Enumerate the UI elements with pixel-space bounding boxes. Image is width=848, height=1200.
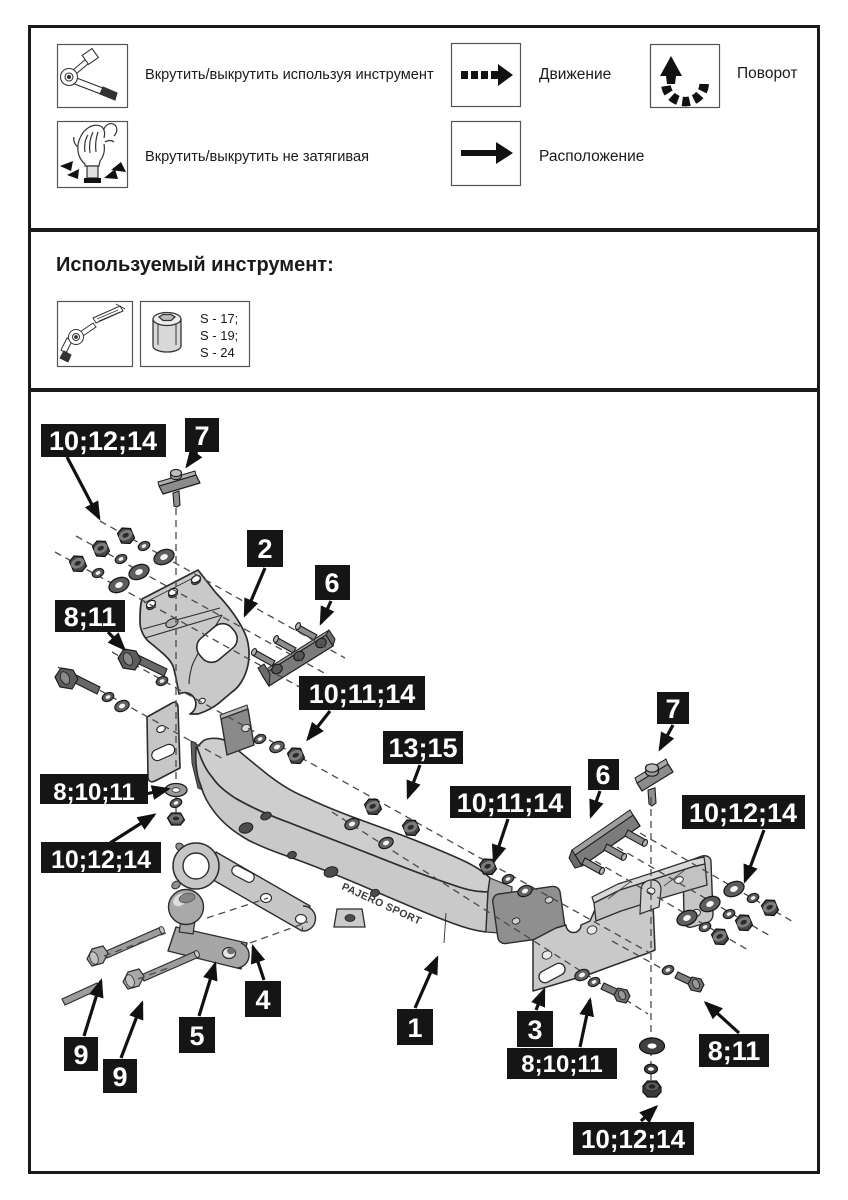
svg-text:8;10;11: 8;10;11 [521, 1051, 602, 1078]
svg-text:2: 2 [257, 534, 272, 564]
svg-text:9: 9 [112, 1062, 127, 1092]
svg-text:13;15: 13;15 [388, 733, 457, 763]
svg-text:8;10;11: 8;10;11 [53, 779, 134, 806]
svg-text:8;11: 8;11 [64, 602, 117, 632]
svg-text:Вкрутить/выкрутить не затягива: Вкрутить/выкрутить не затягивая [145, 149, 369, 165]
svg-text:Движение: Движение [539, 66, 611, 83]
svg-text:7: 7 [194, 421, 209, 451]
svg-text:10;12;14: 10;12;14 [51, 846, 151, 874]
svg-text:10;12;14: 10;12;14 [581, 1124, 686, 1154]
svg-text:Поворот: Поворот [737, 65, 797, 82]
svg-text:S - 24: S - 24 [200, 345, 235, 360]
svg-text:6: 6 [324, 568, 339, 598]
svg-text:6: 6 [595, 760, 610, 790]
svg-text:Используемый инструмент:: Используемый инструмент: [56, 254, 334, 276]
svg-text:10;12;14: 10;12;14 [689, 798, 797, 828]
svg-text:5: 5 [189, 1021, 204, 1051]
svg-text:3: 3 [527, 1015, 542, 1045]
svg-text:1: 1 [407, 1013, 422, 1043]
svg-text:9: 9 [73, 1040, 88, 1070]
svg-text:S - 19;: S - 19; [200, 328, 238, 343]
svg-text:Вкрутить/выкрутить используя и: Вкрутить/выкрутить используя инструмент [145, 67, 434, 83]
svg-text:4: 4 [255, 985, 270, 1015]
svg-text:8;11: 8;11 [708, 1036, 761, 1066]
svg-text:10;11;14: 10;11;14 [309, 679, 416, 709]
svg-text:Расположение: Расположение [539, 148, 644, 165]
svg-text:7: 7 [665, 694, 680, 724]
svg-text:10;11;14: 10;11;14 [457, 788, 564, 818]
svg-text:S - 17;: S - 17; [200, 311, 238, 326]
svg-text:10;12;14: 10;12;14 [49, 426, 157, 456]
